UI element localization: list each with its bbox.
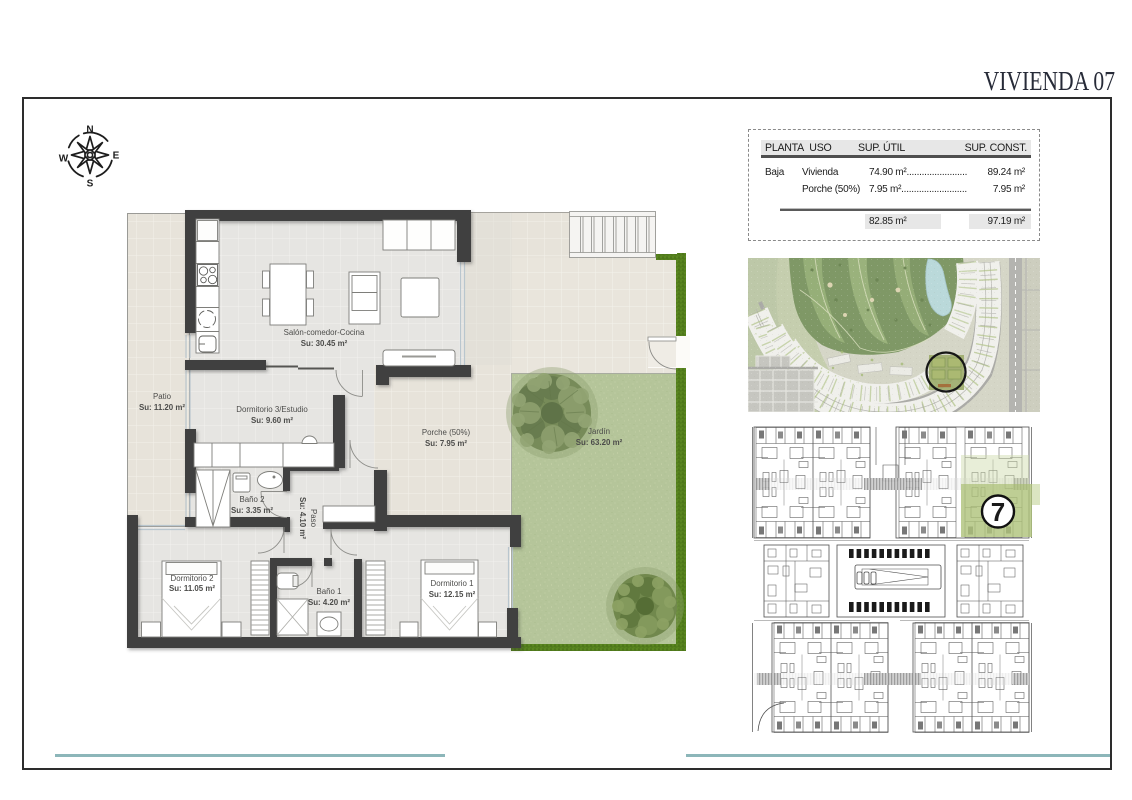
svg-text:Dormitorio 3/Estudio: Dormitorio 3/Estudio	[236, 405, 308, 414]
svg-text:N: N	[86, 125, 93, 136]
svg-text:Su: 12.15 m²: Su: 12.15 m²	[429, 590, 476, 599]
svg-text:Baño 1: Baño 1	[316, 587, 341, 596]
svg-text:7: 7	[991, 497, 1005, 527]
svg-text:Dormitorio 1: Dormitorio 1	[431, 579, 474, 588]
svg-text:S: S	[87, 179, 94, 190]
svg-text:Porche (50%): Porche (50%)	[422, 428, 471, 437]
svg-text:Paso: Paso	[309, 509, 318, 528]
svg-text:Baño 2: Baño 2	[239, 495, 264, 504]
svg-text:Su: 11.20 m²: Su: 11.20 m²	[139, 403, 185, 412]
svg-text:Su: 9.60 m²: Su: 9.60 m²	[251, 416, 293, 425]
svg-text:Su: 7.95 m²: Su: 7.95 m²	[425, 439, 467, 448]
svg-text:Jardín: Jardín	[588, 427, 610, 436]
svg-text:Su: 3.35 m²: Su: 3.35 m²	[231, 506, 273, 515]
svg-text:Su: 4.10 m²: Su: 4.10 m²	[298, 497, 307, 539]
svg-text:Dormitorio 2: Dormitorio 2	[171, 574, 214, 583]
svg-text:Su: 11.05 m²: Su: 11.05 m²	[169, 584, 215, 593]
svg-text:Su: 30.45 m²: Su: 30.45 m²	[301, 339, 348, 348]
svg-text:Patio: Patio	[153, 392, 172, 401]
svg-text:E: E	[113, 151, 120, 162]
svg-text:Su: 63.20 m²: Su: 63.20 m²	[576, 438, 623, 447]
svg-text:W: W	[59, 154, 69, 165]
svg-text:Su: 4.20 m²: Su: 4.20 m²	[308, 598, 350, 607]
svg-text:Salón-comedor-Cocina: Salón-comedor-Cocina	[284, 328, 365, 337]
